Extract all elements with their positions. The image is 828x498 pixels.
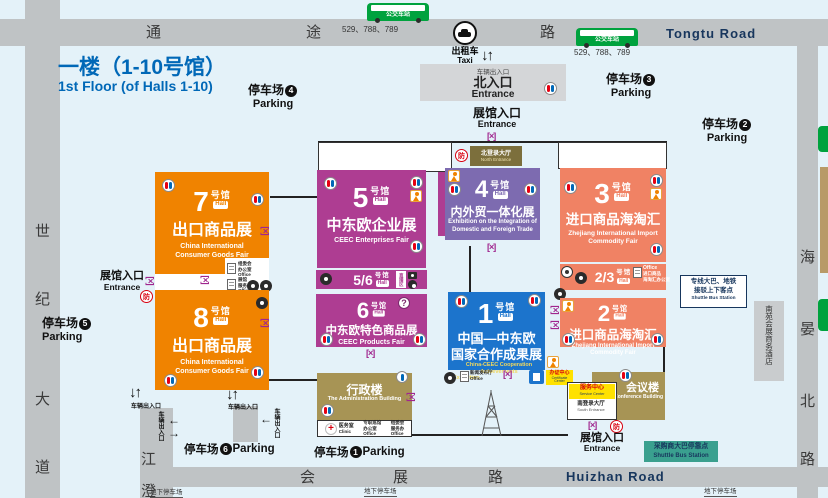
- clinic-cross-icon: [325, 423, 337, 435]
- hall-unit: 号馆: [490, 181, 510, 190]
- parking-number: 2: [739, 119, 751, 131]
- hall-subtitle: CEEC Enterprises Fair: [334, 237, 409, 245]
- parking-number: 5: [79, 318, 91, 330]
- hall-unit: 号馆: [612, 305, 628, 312]
- bus-shelter-edge-icon: [818, 299, 828, 331]
- shuttle-line: 接驳上下客点: [681, 287, 746, 296]
- bus-shelter-edge-icon: [818, 126, 828, 152]
- hall-chip: Hall: [498, 313, 513, 321]
- entrance-gate-icon: [366, 349, 374, 358]
- hall-subtitle: Zhejiang International Import: [572, 343, 655, 350]
- road-char: 纪: [35, 292, 50, 307]
- restroom-icon: [324, 177, 337, 190]
- bus-station-icon: 公交车站: [367, 3, 429, 21]
- arrow-left-icon: [260, 413, 270, 425]
- road-char: 展: [393, 470, 408, 485]
- parking-1-label: 停车场1Parking: [314, 444, 405, 460]
- service-center-box: 服务中心 Service Center: [569, 384, 615, 399]
- page-title: 一楼（1-10号馆） 1st Floor (of Halls 1-10): [58, 56, 268, 94]
- bus-station-icon: 公交车站: [576, 28, 638, 46]
- vehicle-gate-label: 车辆出入口: [157, 411, 163, 451]
- parking-en: Parking: [596, 87, 666, 100]
- live-area-label: 直播区: [399, 273, 404, 287]
- parking-number: 6: [220, 443, 232, 455]
- camera-icon: [256, 297, 268, 309]
- admin-building-zh: 行政楼: [317, 384, 412, 396]
- underground-parking-label: 地下停车场: [150, 488, 183, 498]
- hall-entrance-top-en: Entrance: [453, 120, 541, 129]
- parking-word: 停车场: [248, 84, 284, 98]
- camera-icon: [444, 372, 456, 384]
- office-line: 专职巡馆: [363, 420, 381, 426]
- road-char: 大: [35, 392, 50, 407]
- shuttle-line: Shuttle Bus Station: [644, 452, 718, 460]
- road-bottom-horizontal: [140, 467, 828, 487]
- hall-title: 出口商品展: [172, 337, 252, 356]
- clinic-zh: 医务室: [339, 423, 354, 429]
- restroom-icon: [564, 181, 577, 194]
- shuttle-bus-station-box: 专线大巴、地铁 接驳上下客点 Shuttle Bus Station: [680, 275, 747, 308]
- entrance-gate-icon: [261, 318, 270, 326]
- restroom-icon: [524, 183, 537, 196]
- admin-building-en: The Administration Building: [317, 396, 412, 402]
- restroom-icon: [162, 179, 175, 192]
- camera-icon: [320, 273, 332, 285]
- underground-parking-label: 地下停车场: [704, 487, 737, 497]
- hotel-box: 南苑会展商务酒店: [754, 301, 784, 381]
- parking-number: 3: [643, 74, 655, 86]
- parking-word: 停车场: [702, 118, 738, 132]
- hall-number: 2/3: [595, 270, 614, 284]
- hall-unit: 号馆: [211, 191, 231, 200]
- road-char: 海: [800, 250, 815, 265]
- hall-title: 进口商品海淘汇: [569, 328, 657, 343]
- road-char: 世: [35, 224, 50, 239]
- road-left-vertical: [25, 0, 60, 498]
- south-lobby-label: 南登录大厅 South Entrance: [568, 401, 614, 412]
- hall-unit: 号馆: [612, 183, 632, 192]
- hall-entrance-top-zh: 展馆入口: [453, 107, 541, 119]
- hall-subtitle: Consumer Goods Fair: [175, 368, 249, 376]
- restroom-icon: [562, 333, 575, 346]
- hall-title: 进口商品海淘汇: [566, 212, 661, 228]
- restroom-icon: [544, 82, 557, 95]
- entrance-gate-icon: [261, 226, 270, 234]
- road-char: 江: [141, 452, 156, 467]
- entrance-gate-icon: [201, 275, 210, 283]
- clinic-block: 医务室 Clinic: [325, 423, 354, 435]
- road-char: 途: [306, 25, 321, 40]
- restroom-icon: [413, 333, 426, 346]
- road-char: 通: [146, 25, 161, 40]
- entrance-gate-icon: [487, 243, 495, 252]
- hotel-label: 南苑会展商务酒店: [765, 305, 774, 377]
- road-stub-hall8: [233, 406, 258, 442]
- hall-number: 4: [475, 178, 488, 202]
- hall-unit: 号馆: [616, 270, 631, 277]
- parking-number: 4: [285, 85, 297, 97]
- hall-unit: 号馆: [371, 302, 387, 309]
- certificate-badge-icon: [529, 370, 544, 384]
- hall-subtitle: China International: [180, 359, 243, 367]
- office-doc-icon: [227, 279, 236, 290]
- restroom-icon: [321, 404, 334, 417]
- north-lobby-box: 北登录大厅 North Entrance: [470, 146, 522, 166]
- road-char: 路: [540, 25, 555, 40]
- entrance-gate-icon: [551, 320, 560, 328]
- office-label: 组委会 服务办 Office: [391, 420, 405, 437]
- shuttle-line: 采购商大巴停靠点: [644, 441, 718, 452]
- building-wall: [663, 347, 665, 372]
- restroom-icon: [448, 183, 461, 196]
- office-label: 专职巡馆 办公室 Office: [363, 420, 381, 437]
- hall-unit: 号馆: [495, 303, 515, 312]
- parking-en: Parking: [244, 98, 302, 111]
- parking-4-label: 停车场4 Parking: [244, 84, 302, 110]
- page-title-zh: 一楼（1-10号馆）: [58, 56, 268, 79]
- building-wall: [469, 246, 471, 292]
- south-lobby-box: 服务中心 Service Center 南登录大厅 South Entrance: [567, 382, 617, 420]
- escalator-person-icon: [410, 190, 422, 202]
- hall-subtitle: Exhibition on the Integration of: [448, 219, 537, 226]
- hall-subtitle: CEEC Products Fair: [338, 339, 405, 347]
- parking-2-label: 停车场2 Parking: [690, 118, 764, 144]
- road-char: 会: [300, 470, 315, 485]
- entrance-gate-icon: [551, 305, 560, 313]
- hall-title: 中国—中东欧: [457, 331, 535, 347]
- parking-word: 停车场: [606, 73, 642, 87]
- hall-entrance-bottom-en: Entrance: [576, 444, 628, 453]
- entrance-gate-icon: [503, 370, 511, 379]
- restroom-icon: [396, 371, 408, 383]
- hall-title: 内外贸一体化展: [450, 205, 534, 219]
- escalator-person-icon: [650, 188, 662, 200]
- camera-icon: [408, 280, 417, 289]
- hall-unit: 号馆: [211, 307, 231, 316]
- road-char: 道: [35, 460, 50, 475]
- entrance-gate-icon: [487, 132, 495, 141]
- hall-title: 中东欧企业展: [326, 217, 416, 235]
- edge-building: [820, 167, 828, 273]
- office-line: 组委会: [238, 261, 252, 267]
- hall-chip: Hall: [373, 310, 385, 316]
- restroom-icon: [651, 333, 664, 346]
- office-line: Office: [363, 431, 381, 437]
- hall-chip: Hall: [614, 193, 629, 201]
- camera-icon: [575, 272, 587, 284]
- road-char: 路: [800, 452, 815, 467]
- hall-subtitle: Commodity Fair: [588, 238, 637, 246]
- hall-number: 8: [193, 304, 209, 332]
- hall-chip: Hall: [213, 317, 228, 325]
- bus-station-label: 公交车站: [576, 37, 638, 44]
- hall-number: 7: [193, 188, 209, 216]
- road-name-huizhan: Huizhan Road: [566, 470, 665, 483]
- exhibition-center-floor-map: 通 途 路 Tongtu Road 会 展 路 Huizhan Road 世 纪…: [0, 0, 828, 498]
- restroom-icon: [650, 174, 663, 187]
- bus-routes: 529、788、789: [342, 26, 398, 34]
- taxi-icon: [453, 21, 477, 45]
- office-doc-icon: [633, 267, 642, 278]
- escalator-person-icon: [448, 170, 460, 182]
- hall-unit: 号馆: [375, 273, 390, 280]
- parking-en: Parking: [233, 443, 275, 455]
- vehicle-arrows-icon: [481, 48, 492, 63]
- restroom-icon: [650, 243, 663, 256]
- road-right-vertical: [797, 45, 818, 498]
- hall-title: 中东欧特色商品展: [326, 325, 418, 339]
- road-char: 北: [800, 394, 815, 409]
- clinic-label: 医务室 Clinic: [339, 423, 354, 435]
- shuttle-line: Shuttle Bus Station: [681, 296, 746, 302]
- road-char: 路: [488, 470, 503, 485]
- office-line: 组委会: [391, 420, 405, 426]
- road-name-tongtu: Tongtu Road: [666, 27, 756, 40]
- hall-entrance-left-zh: 展馆入口: [92, 271, 152, 282]
- office-label: 组委会 办公室 Office: [238, 261, 252, 278]
- tower-structure: [478, 390, 505, 437]
- lobby-hall5: [318, 142, 452, 172]
- hall-title: 国家合作成果展: [451, 347, 542, 363]
- restroom-icon: [164, 374, 177, 387]
- underground-parking-label: 地下停车场: [364, 487, 397, 497]
- bus-windows: [580, 30, 634, 36]
- restroom-icon: [320, 333, 333, 346]
- hall-subtitle: Domestic and Foreign Trade: [452, 227, 533, 234]
- entrance-gate-icon: [407, 392, 416, 400]
- admin-office-strip: 医务室 Clinic 专职巡馆 办公室 Office 组委会 服务办 Offic…: [317, 420, 412, 437]
- office-label: Office 进口商品 海淘汇办公室: [643, 265, 670, 283]
- arrow-left-icon: [168, 414, 178, 426]
- hall-chip: Hall: [373, 197, 388, 205]
- office-doc-icon: [227, 263, 236, 274]
- shuttle-line: 专线大巴、地铁: [681, 276, 746, 287]
- hall-number: 2: [598, 303, 610, 325]
- hall-number: 1: [478, 300, 494, 328]
- road-char: 晏: [800, 322, 815, 337]
- hall-unit: 号馆: [370, 187, 390, 196]
- camera-icon: [408, 272, 417, 279]
- office-line: 新闻发布厅: [470, 370, 493, 376]
- hall-chip: Hall: [614, 313, 626, 319]
- restroom-icon: [528, 294, 541, 307]
- hall-number: 5: [353, 184, 369, 212]
- hall-number: 6: [356, 300, 368, 322]
- parking-3-label: 停车场3 Parking: [596, 73, 666, 99]
- restroom-icon: [251, 366, 264, 379]
- bus-station-label: 公交车站: [367, 12, 429, 19]
- office-line: Office: [391, 431, 405, 437]
- north-lobby-en: North Entrance: [470, 157, 522, 162]
- parking-number: 1: [350, 446, 362, 458]
- hall-chip: Hall: [493, 191, 508, 199]
- lobby-hall3: [558, 142, 667, 169]
- parking-en: Parking: [690, 132, 764, 145]
- hall-title: 出口商品展: [172, 221, 252, 240]
- parking-en: Parking: [42, 331, 106, 344]
- vehicle-gate-label: 车辆出入口: [122, 401, 170, 410]
- restroom-icon: [251, 193, 264, 206]
- escalator-person-icon: [547, 356, 559, 368]
- fire-protection-icon: 防: [140, 290, 153, 303]
- bus-windows: [371, 5, 425, 11]
- arrow-right-icon: [168, 427, 178, 439]
- service-center-en: Service Center: [569, 392, 615, 396]
- hall-number: 3: [594, 180, 610, 208]
- hall-subtitle: Zhejiang International Import: [568, 230, 658, 238]
- page-title-en: 1st Floor (of Halls 1-10): [58, 79, 268, 94]
- buyer-shuttle-box: 采购商大巴停靠点 Shuttle Bus Station: [644, 441, 718, 462]
- hall-chip: Hall: [376, 280, 389, 287]
- restroom-icon: [619, 369, 632, 382]
- information-icon: [398, 297, 410, 309]
- hall-subtitle: Commodity Fair: [590, 350, 636, 357]
- hall-chip: Hall: [617, 278, 630, 285]
- north-entrance-box: 车辆出入口 北入口 Entrance: [420, 64, 566, 101]
- parking-word: 停车场: [314, 444, 349, 460]
- entrance-gate-icon: [588, 421, 596, 430]
- office-doc-icon: [460, 371, 469, 382]
- building-wall: [270, 196, 318, 198]
- restroom-icon: [410, 176, 423, 189]
- office-line: 海淘汇办公室: [643, 277, 670, 283]
- hall-chip: Hall: [213, 201, 228, 209]
- office-label: 新闻发布厅 Office: [470, 370, 493, 381]
- escalator-person-icon: [562, 300, 574, 312]
- vehicle-arrows-icon: [129, 385, 140, 400]
- service-center-zh: 服务中心: [569, 384, 615, 392]
- hall-number: 5/6: [353, 273, 372, 287]
- parking-word: 停车场: [42, 317, 78, 331]
- car-glyph: [458, 32, 471, 37]
- vehicle-gate-label: 车辆出入口: [273, 408, 279, 448]
- vehicle-gate-label: 车辆出入口: [219, 402, 267, 411]
- clinic-en: Clinic: [339, 429, 354, 435]
- restroom-icon: [455, 295, 468, 308]
- parking-en: Parking: [363, 446, 405, 458]
- office-line: Office: [470, 376, 493, 382]
- restroom-icon: [410, 240, 423, 253]
- bus-routes: 529、788、789: [574, 49, 630, 57]
- live-area-box: 直播区: [396, 271, 406, 288]
- vehicle-arrows-icon: [226, 387, 237, 402]
- taxi-label: 出租车 Taxi: [445, 47, 485, 66]
- north-lobby-zh: 北登录大厅: [470, 146, 522, 157]
- parking-5-label: 停车场5 Parking: [42, 317, 106, 343]
- parking-6-label: 停车场6Parking: [184, 441, 275, 457]
- south-lobby-en: South Entrance: [568, 408, 614, 413]
- parking-word: 停车场: [184, 441, 219, 457]
- hall-subtitle: China International: [180, 243, 243, 251]
- microphone-icon: [561, 266, 573, 278]
- building-wall: [269, 379, 317, 381]
- fire-protection-icon: 防: [455, 149, 468, 162]
